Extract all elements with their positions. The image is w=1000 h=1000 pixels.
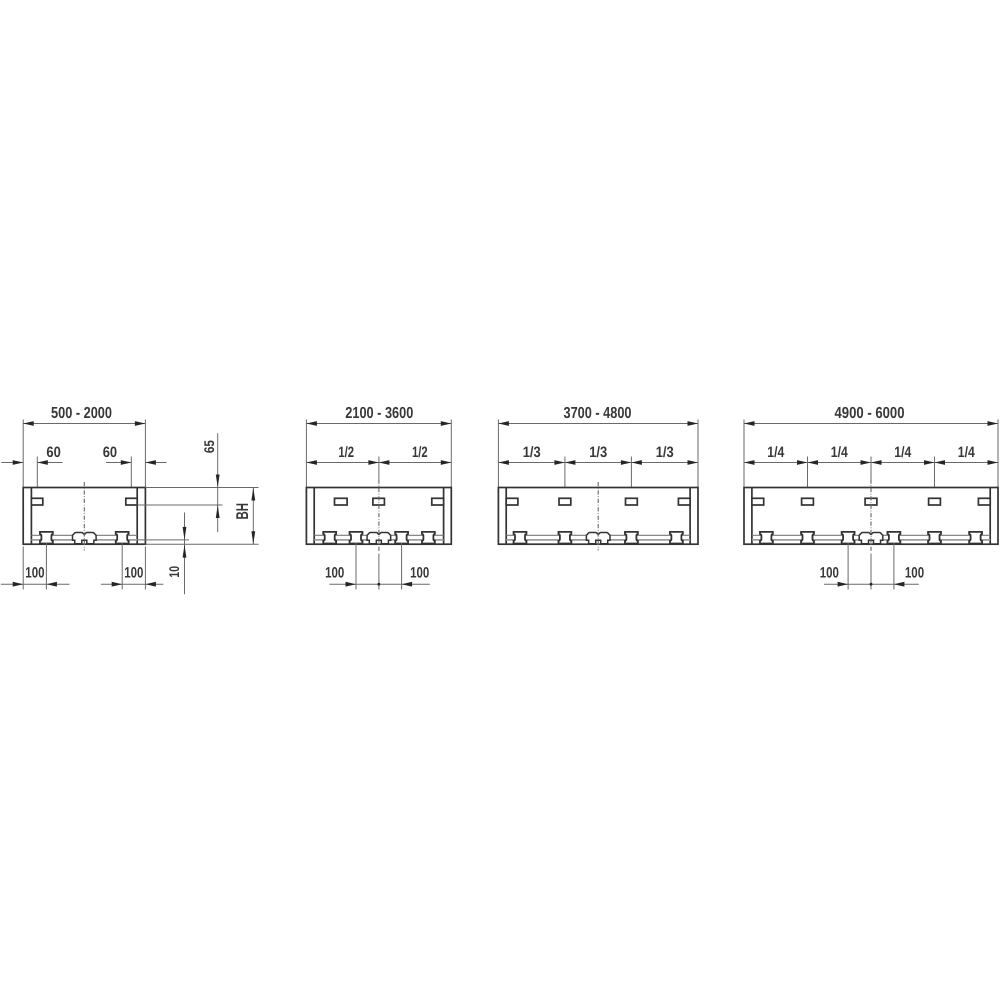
svg-text:1/2: 1/2 <box>338 444 354 461</box>
svg-text:2100 - 3600: 2100 - 3600 <box>345 405 413 422</box>
svg-text:100: 100 <box>124 565 143 582</box>
svg-text:1/4: 1/4 <box>958 444 976 461</box>
svg-text:100: 100 <box>820 565 839 582</box>
svg-text:1/4: 1/4 <box>894 444 912 461</box>
svg-text:500 - 2000: 500 - 2000 <box>51 405 112 422</box>
svg-text:1/3: 1/3 <box>656 444 674 461</box>
svg-text:BH: BH <box>233 503 252 520</box>
svg-text:65: 65 <box>201 440 217 453</box>
svg-text:1/3: 1/3 <box>589 444 607 461</box>
svg-text:10: 10 <box>166 566 182 578</box>
svg-text:100: 100 <box>325 565 344 582</box>
svg-text:3700 - 4800: 3700 - 4800 <box>564 405 632 422</box>
svg-text:60: 60 <box>46 444 60 461</box>
svg-text:1/2: 1/2 <box>412 444 428 461</box>
svg-text:100: 100 <box>410 565 429 582</box>
svg-text:100: 100 <box>905 565 924 582</box>
svg-text:1/3: 1/3 <box>523 444 541 461</box>
svg-text:1/4: 1/4 <box>767 444 785 461</box>
svg-text:100: 100 <box>25 565 44 582</box>
svg-text:4900 - 6000: 4900 - 6000 <box>835 405 905 422</box>
svg-text:60: 60 <box>103 444 117 461</box>
svg-text:1/4: 1/4 <box>831 444 849 461</box>
